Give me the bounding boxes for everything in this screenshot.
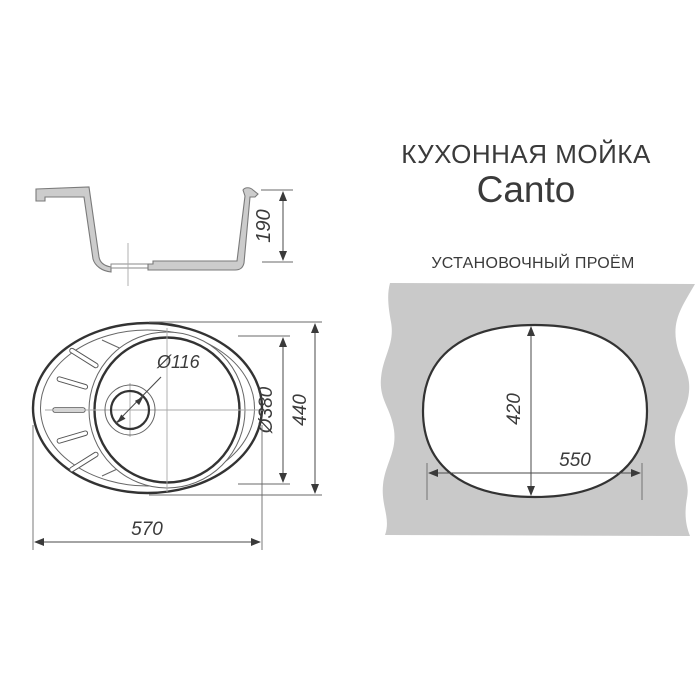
cutout-opening xyxy=(423,325,647,497)
product-category: КУХОННАЯ МОЙКА xyxy=(370,140,682,169)
product-name: Canto xyxy=(370,169,682,212)
cutout-height-dim-label: 420 xyxy=(504,393,525,425)
cutout-section-label: УСТАНОВОЧНЫЙ ПРОЁМ xyxy=(383,255,683,273)
depth-dim-label: 190 xyxy=(253,209,275,242)
drain-dim-label: Ø116 xyxy=(156,352,201,372)
cutout-width-dim-label: 550 xyxy=(559,450,591,471)
top-view: Ø116 Ø380 440 570 xyxy=(20,315,330,560)
section-drain-recess xyxy=(111,264,150,268)
bowl-dim-label: Ø380 xyxy=(256,386,277,434)
installation-panel: 420 550 xyxy=(373,280,700,542)
title-block: КУХОННАЯ МОЙКА Canto xyxy=(370,140,682,211)
width-dim-label: 570 xyxy=(131,519,163,540)
section-right-wall xyxy=(148,188,258,270)
sink-technical-drawing: 190 КУХОННАЯ МОЙКА Canto УСТАНОВОЧНЫЙ ПР… xyxy=(0,0,700,700)
section-left-wall xyxy=(36,187,111,272)
cross-section-view: 190 xyxy=(25,180,305,295)
height-dim-label: 440 xyxy=(290,394,311,426)
